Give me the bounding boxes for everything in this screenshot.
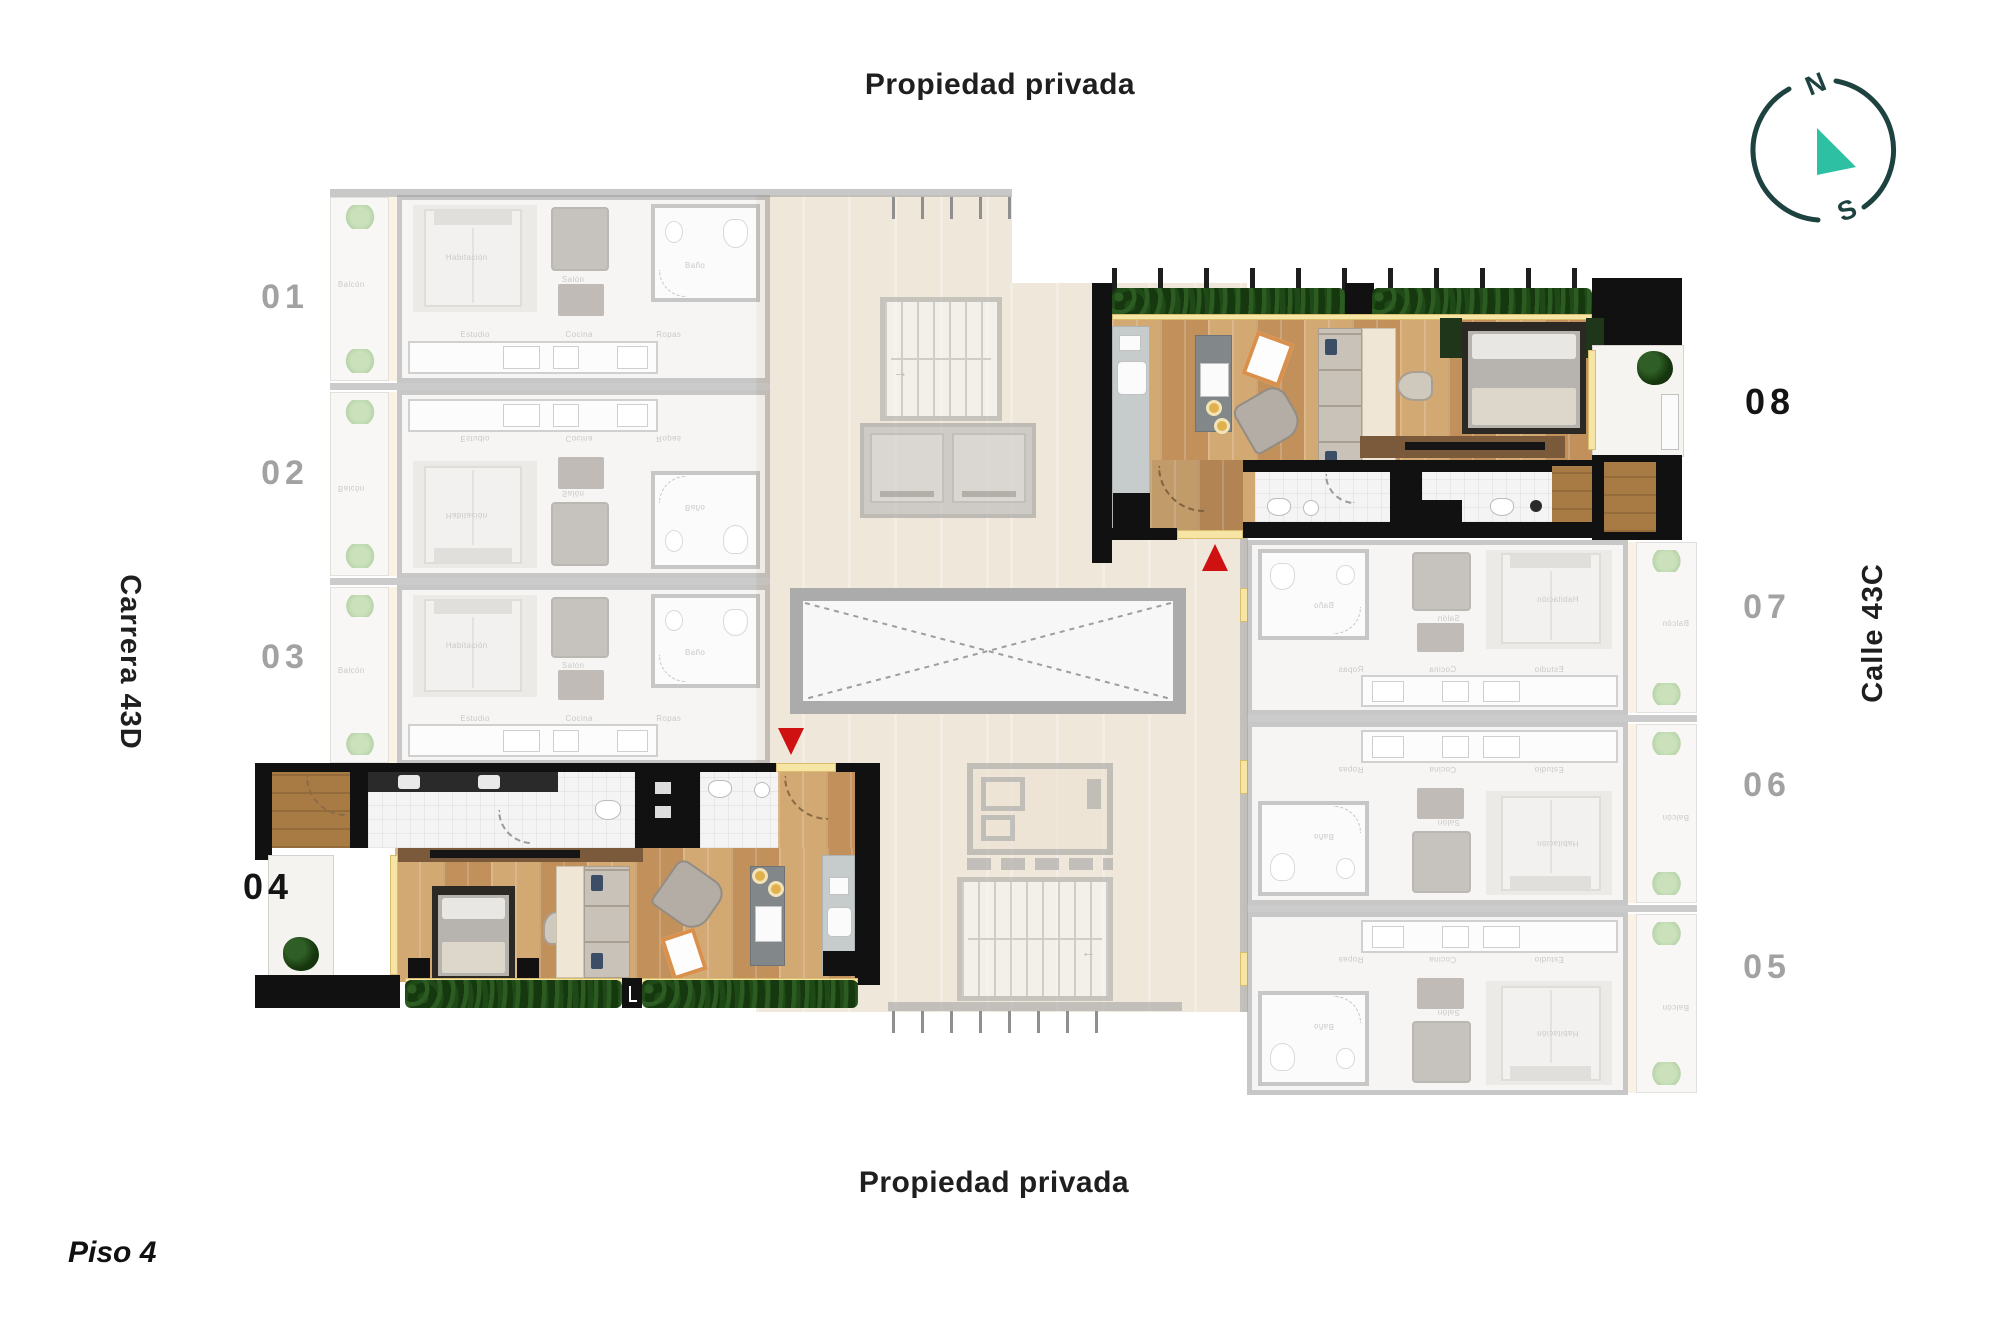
unit-08-plan [1080,260,1700,580]
unit-label-04: 04 [228,866,308,908]
oven-icon [1113,493,1151,529]
fridge-icon [617,404,649,427]
sofa-icon [551,207,609,271]
bathroom-1 [368,772,635,848]
fridge-icon [1372,681,1404,702]
stove-icon [1483,681,1520,702]
top-private-property-label: Propiedad privada [600,68,1400,102]
unit-08-entrance-marker [1202,544,1228,571]
balcony-strip: Balcón [330,392,389,576]
dashed-wall [967,858,1113,870]
door-arc [1334,996,1361,1023]
ottoman-icon [558,670,603,701]
hedge-planter [405,980,622,1008]
door-arc [1334,607,1361,634]
wall [1592,278,1682,345]
bedroom-label: Habitación [1537,595,1579,604]
compass-north-letter: N [1801,70,1830,102]
planter-icon [1440,318,1462,358]
bathroom-label: Baño [1314,832,1334,841]
bathroom-label: Baño [1314,601,1334,610]
plant-icon [1650,683,1683,705]
kitchen-label: Cocina [566,330,593,339]
bathroom-1 [1255,472,1390,522]
kitchen-strip [408,399,658,433]
bottom-private-property-label: Propiedad privada [594,1166,1394,1200]
coffee-maker-icon [829,877,849,895]
toilet-icon [708,780,732,798]
plant-icon [344,595,376,618]
sink-icon [1336,858,1355,879]
plant-icon [1637,351,1673,385]
unit-divider [1247,905,1697,912]
sofa-icon [551,597,609,658]
unit-divider [1247,715,1697,722]
wall [255,763,272,860]
unit-label-07: 07 [1727,588,1807,627]
bathroom-box: Baño [651,594,760,688]
bathroom-2 [700,772,778,848]
wall [1243,522,1592,538]
kitchen-sink-icon [553,346,580,369]
bedroom-label: Habitación [1537,839,1579,848]
kitchen-sink-icon [553,404,580,427]
bedroom-label: Habitación [446,511,488,520]
living-label: Salón [1437,1008,1459,1017]
fridge-icon [617,346,649,369]
balcony-label: Balcón [338,484,365,493]
laundry-closet [645,772,700,848]
bathroom-box: Baño [651,471,760,569]
chair-icon [1397,371,1433,401]
compass-icon: N S [1744,70,1904,230]
bed-icon [432,886,515,982]
toilet-icon [723,525,747,554]
unit-label-03: 03 [245,638,325,677]
sink-icon [665,221,683,243]
door-arc [1158,466,1204,512]
elevator-cab [952,433,1026,503]
ottoman-icon [1417,978,1463,1009]
unit-04-entrance-marker [778,728,804,755]
door-arc [784,776,828,820]
bathroom-label: Baño [1314,1022,1334,1031]
coffee-maker-icon [1119,335,1141,351]
ottoman-icon [558,284,603,316]
window-sill [1588,350,1596,450]
door-arc [1325,474,1355,504]
unit-label-05: 05 [1727,948,1807,987]
unit-04-plan [255,725,895,1015]
floorplan-page: Propiedad privada Propiedad privada Piso… [0,0,1996,1330]
ottoman-icon [1417,788,1463,819]
vanity-counter [1422,500,1462,522]
door-arc [1334,806,1361,833]
door-arc [659,476,686,503]
floor-label: Piso 4 [68,1236,156,1270]
living-label: Salón [562,275,584,284]
study-label: Estudio [460,434,489,443]
kitchen-counter [1112,326,1150,528]
laundry-label: Ropas [1338,955,1363,964]
window-sill [1628,724,1636,903]
unit-body: Habitación Salón Baño Estudio Cocina Rop… [1247,912,1628,1095]
kitchen-label: Cocina [1429,955,1456,964]
plant-icon [1650,922,1683,945]
sink-icon [1336,1048,1355,1069]
hedge-planter [642,980,858,1008]
stove-icon [1483,926,1520,948]
sofa-icon [1318,328,1362,478]
living-label: Salón [562,489,584,498]
toilet-icon [1490,498,1514,516]
toilet-icon [1267,498,1291,516]
plant-icon [1650,872,1683,895]
unit-divider [330,383,770,390]
unit-01-plan: Balcón Habitación Salón Baño Estudio Coc… [330,195,770,383]
toilet-icon [723,609,747,637]
balcony-post [622,978,642,1008]
compass-south-letter: S [1833,193,1861,228]
void-shaft [790,588,1186,714]
kitchen-strip [1362,920,1618,953]
entry-floor [778,772,855,848]
kitchen-label: Cocina [1429,765,1456,774]
cooktop-icon [755,906,782,942]
kitchen-label: Cocina [566,714,593,723]
bed-icon [1462,322,1586,434]
unit-body: Habitación Salón Baño Estudio Cocina Rop… [397,390,770,578]
elevator-bank [860,423,1036,518]
sink-icon [754,782,770,798]
laundry-label: Ropas [656,714,681,723]
laundry-label: Ropas [656,330,681,339]
bedroom-label: Habitación [446,253,488,262]
bathroom-box: Baño [1258,801,1369,896]
kitchen-strip [408,341,658,375]
stove-icon [503,404,539,427]
plant-icon [344,205,376,229]
wall [1592,455,1682,540]
kitchen-label: Cocina [1429,665,1456,674]
toilet-icon [595,800,621,820]
bathroom-2 [1422,472,1552,522]
entry-floor [1150,460,1243,532]
kitchen-label: Cocina [566,434,593,443]
nightstand-icon [517,958,539,980]
plant-icon [1650,732,1683,755]
fridge-icon [1372,736,1404,758]
sink-icon [478,775,500,789]
balcony-label: Balcón [1662,1003,1689,1012]
stove-icon [503,346,539,369]
unit-label-06: 06 [1727,766,1807,805]
balcony-table-icon [1661,394,1679,450]
door-arc [659,270,686,297]
stairs-top: → [880,297,1002,421]
balcony-strip: Balcón [1636,724,1697,903]
study-label: Estudio [1534,665,1563,674]
sink-icon [1303,500,1319,516]
kitchen-sink-icon [1442,681,1469,702]
window-sill [389,392,397,576]
wall [1112,528,1177,540]
balcony-label: Balcón [338,280,365,289]
balcony-strip: Balcón [1636,914,1697,1093]
bathroom-box: Baño [651,204,760,302]
toilet-icon [723,219,747,248]
ottoman-icon [1417,623,1463,653]
study-label: Estudio [1534,955,1563,964]
living-label: Salón [1437,818,1459,827]
bathroom-label: Baño [685,648,705,657]
kitchen-sink-icon [1442,926,1469,948]
plant-icon [1650,1062,1683,1085]
balcony-label: Balcón [338,666,365,675]
oven-icon [823,951,856,976]
bathroom-label: Baño [685,503,705,512]
kitchen-counter [822,855,855,975]
kitchen-island [1195,335,1232,432]
tv-icon [1405,442,1545,450]
street-label-carrera-43d: Carrera 43D [116,487,146,837]
elevator-cab [870,433,944,503]
balcony-label: Balcón [1662,813,1689,822]
plant-icon [344,349,376,373]
sofa-icon [1412,831,1471,893]
bath-counter [368,772,558,792]
balcony-door-nook [1604,462,1656,532]
wall [255,975,400,1008]
balcony [1592,345,1684,457]
wall [1243,460,1592,472]
fridge-icon [1372,926,1404,948]
sink-icon [665,530,683,552]
living-label: Salón [562,661,584,670]
door-arc [498,810,532,844]
unit-05-plan: Balcón Habitación Salón Baño Estudio Coc… [1247,912,1697,1095]
bedroom-label: Habitación [1537,1029,1579,1038]
balcony-label: Balcón [1662,619,1689,628]
sofa-console [556,866,584,978]
stool-icon [768,881,784,897]
railing-ticks [892,197,1012,219]
building-bottom-wall [888,1002,1182,1011]
unit-label-01: 01 [245,278,325,317]
window-sill [390,855,398,975]
wall [855,763,880,985]
entry-door-sill [1177,530,1243,539]
laundry-label: Ropas [1338,765,1363,774]
bathroom-label: Baño [685,261,705,270]
stairs-bottom: ← [957,877,1113,1001]
living-label: Salón [1437,614,1459,623]
entry-door-sill [776,763,836,772]
bedroom-label: Habitación [446,641,488,650]
kitchen-strip [1362,730,1618,763]
wall [1092,283,1112,563]
plant-icon [344,544,376,568]
stair-direction-arrow: ← [1081,944,1096,961]
study-label: Estudio [1534,765,1563,774]
window-sill [389,197,397,381]
unit-body: Habitación Salón Baño Estudio Cocina Rop… [1247,722,1628,905]
ottoman-icon [558,457,603,489]
tv-icon [430,850,580,858]
unit-label-08: 08 [1730,381,1810,423]
toilet-icon [1270,853,1295,881]
kitchen-sink-icon [1117,361,1147,395]
laundry-label: Ropas [656,434,681,443]
sofa-icon [551,502,609,566]
stove-icon [1483,736,1520,758]
nightstand-icon [408,958,430,980]
stool-icon [1206,400,1222,416]
plant-icon [344,400,376,424]
shower-drain-icon [1530,500,1542,512]
entry-nook [272,772,350,848]
unit-divider [330,578,770,585]
stair-direction-arrow: → [893,364,908,381]
balcony-strip: Balcón [330,197,389,381]
wall [350,772,368,848]
sink-icon [398,775,420,789]
street-label-calle-43c: Calle 43C [1857,458,1887,808]
study-label: Estudio [460,714,489,723]
railing-ticks [892,1011,1114,1033]
wall [1390,472,1422,528]
cooktop-icon [1200,363,1229,397]
kitchen-sink-icon [1442,736,1469,758]
door-arc [659,655,686,682]
wall [635,772,645,848]
window-sill [1628,914,1636,1093]
kitchen-strip [1362,675,1618,706]
unit-02-plan: Balcón Habitación Salón Baño Estudio Coc… [330,390,770,578]
stool-icon [752,868,768,884]
unit-06-plan: Balcón Habitación Salón Baño Estudio Coc… [1247,722,1697,905]
duct-shafts [967,763,1113,855]
stool-icon [1214,418,1230,434]
laundry-label: Ropas [1338,665,1363,674]
sofa-icon [584,866,630,978]
unit-label-02: 02 [245,454,325,493]
sink-icon [665,610,683,631]
toilet-icon [1270,1043,1295,1071]
bathroom-box: Baño [1258,991,1369,1086]
closet-nook [1552,466,1592,528]
plant-icon [283,937,319,971]
unit-body: Habitación Salón Baño Estudio Cocina Rop… [397,195,770,383]
study-label: Estudio [460,330,489,339]
kitchen-sink-icon [827,907,852,937]
sofa-icon [1412,1021,1471,1083]
